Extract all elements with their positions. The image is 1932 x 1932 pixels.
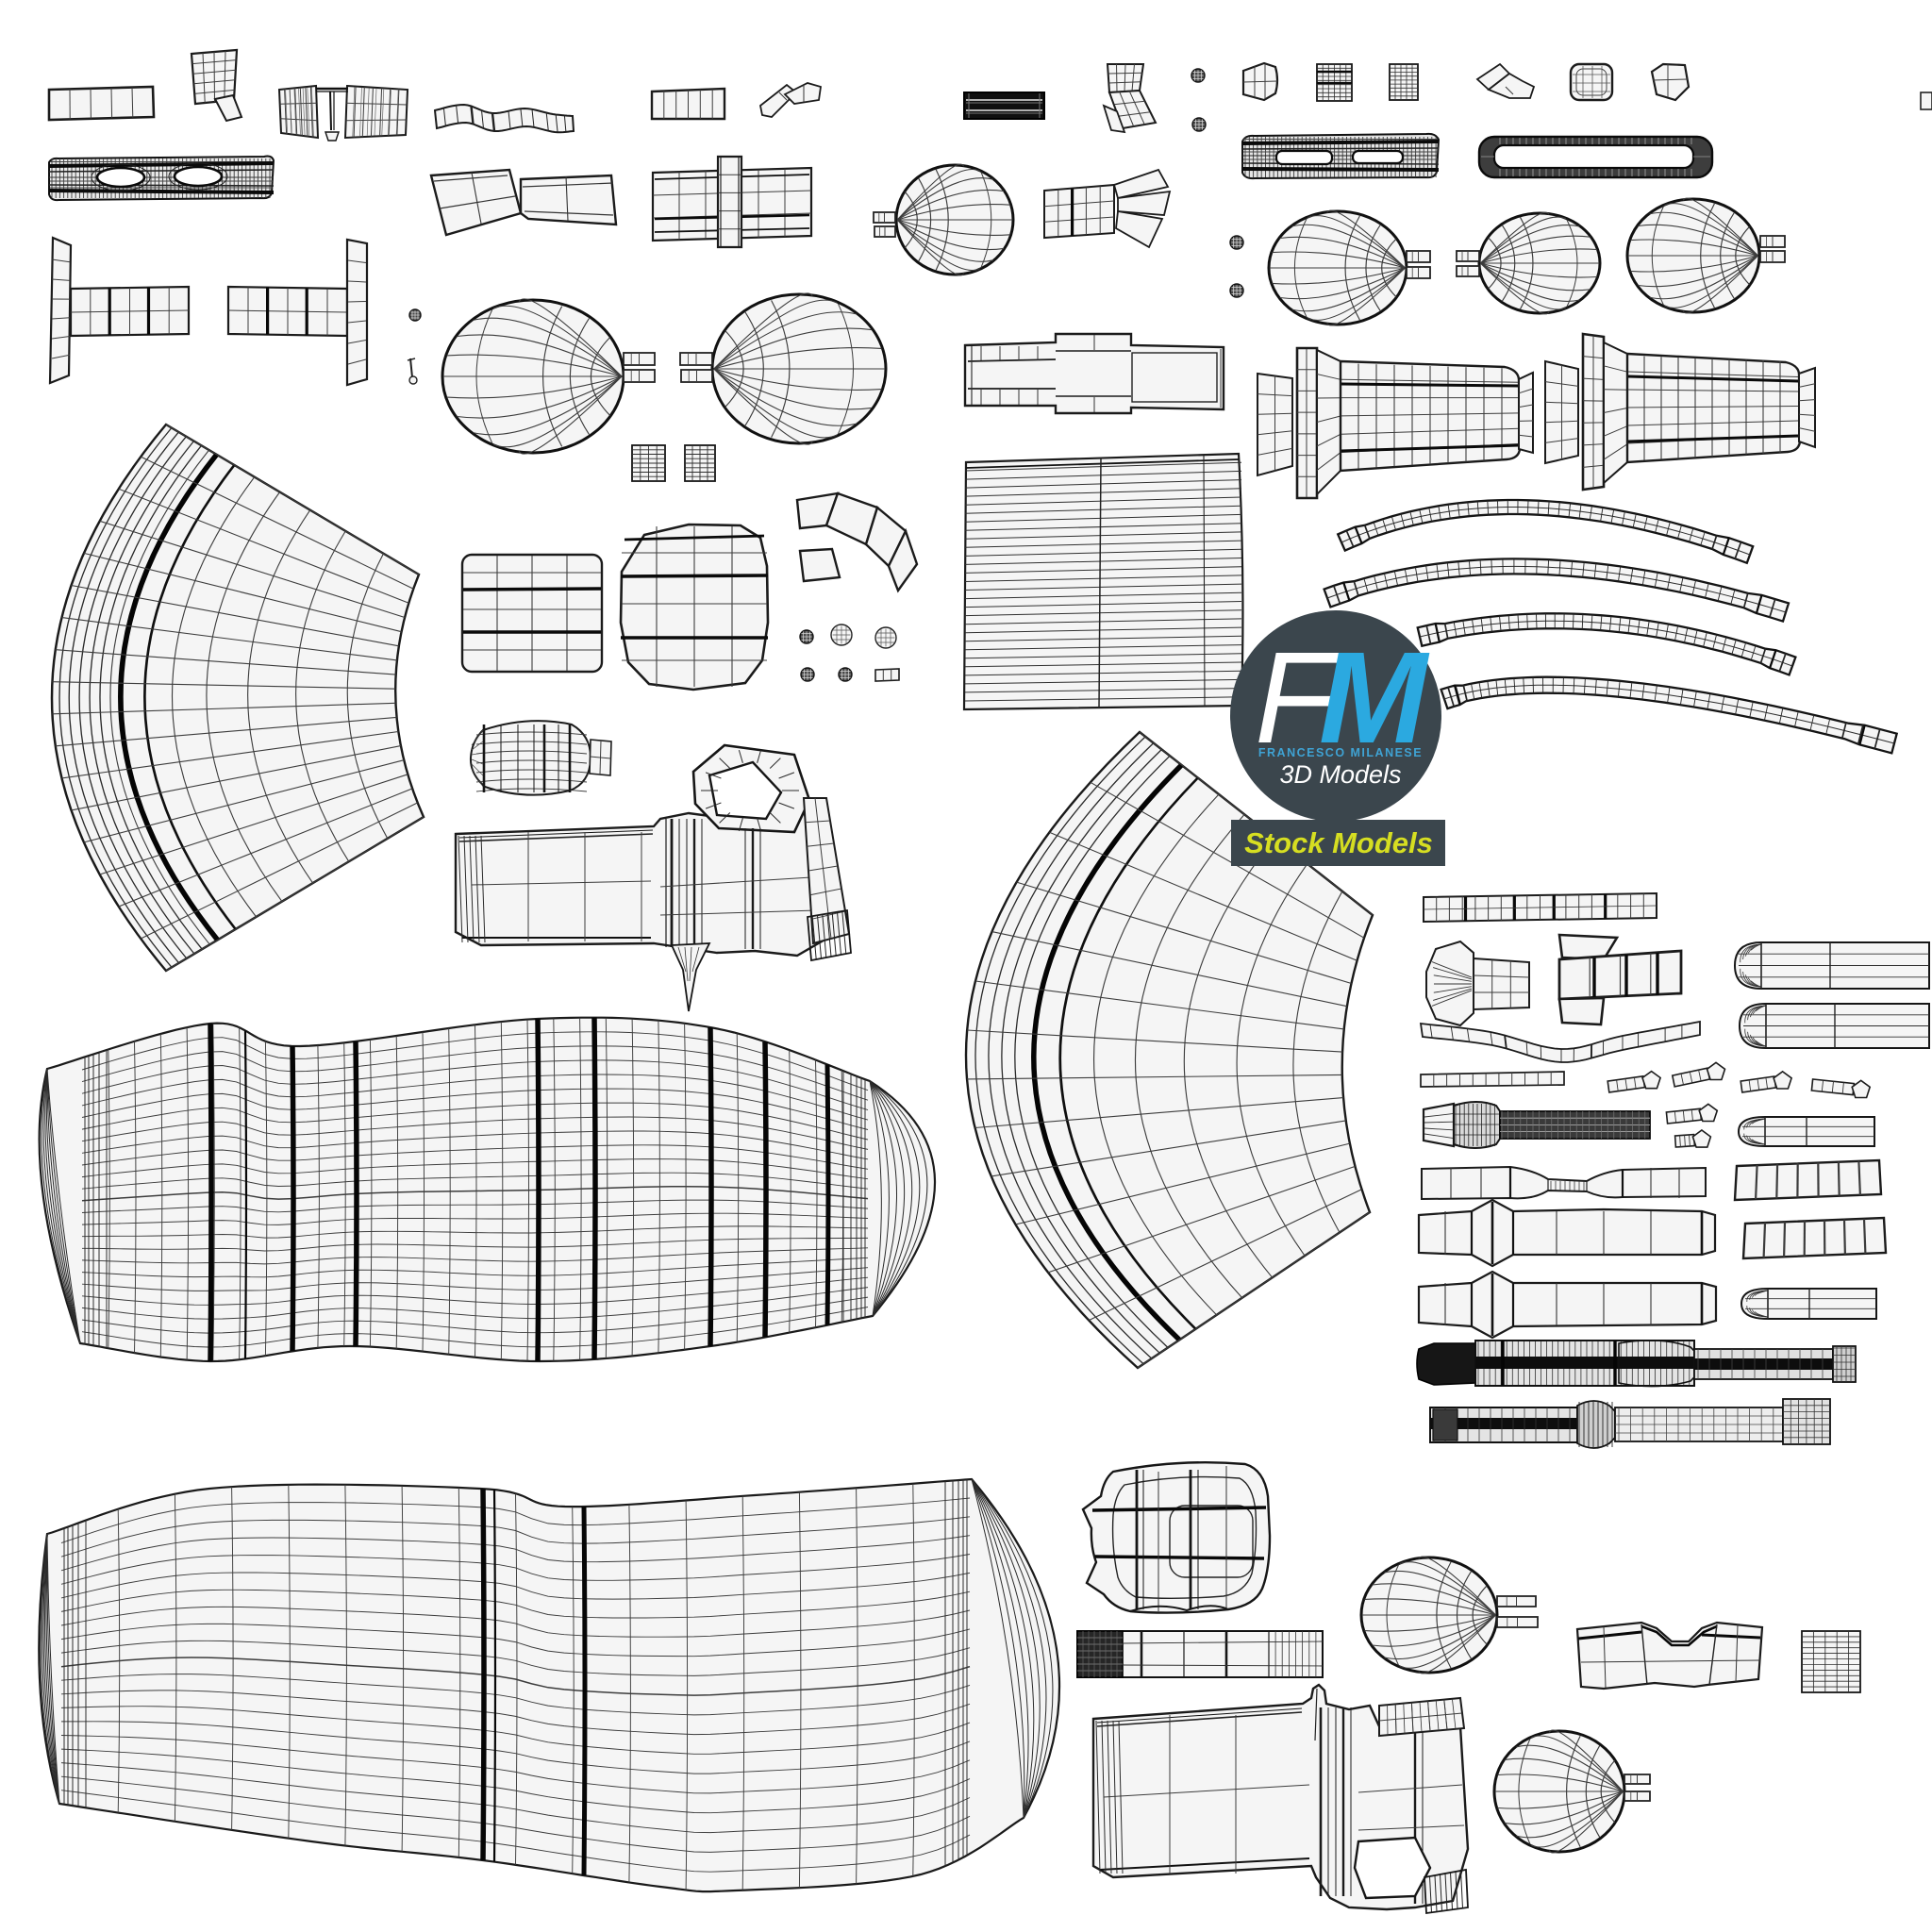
svg-text:3D Models: 3D Models xyxy=(1279,760,1401,789)
svg-text:FRANCESCO MILANESE: FRANCESCO MILANESE xyxy=(1258,746,1423,759)
svg-text:Stock Models: Stock Models xyxy=(1244,826,1433,859)
